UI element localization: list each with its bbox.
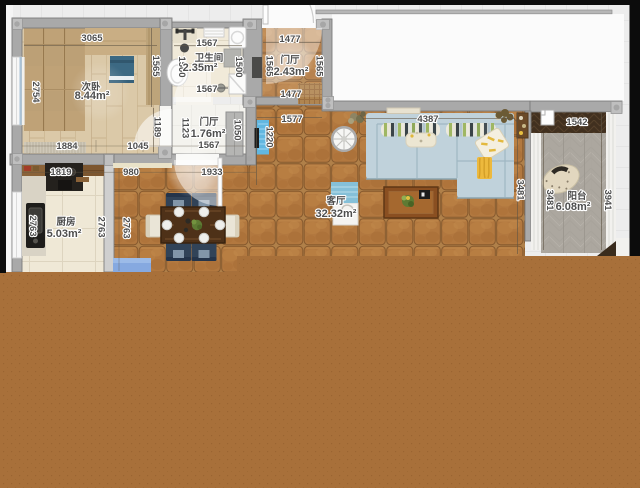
svg-text:1045: 1045 — [127, 141, 149, 152]
svg-text:1577: 1577 — [281, 114, 302, 125]
svg-text:1500: 1500 — [233, 56, 244, 77]
svg-text:1050: 1050 — [232, 119, 243, 140]
svg-text:2.43m²: 2.43m² — [274, 66, 309, 78]
svg-text:8.44m²: 8.44m² — [75, 90, 110, 102]
svg-text:3941: 3941 — [602, 189, 613, 211]
svg-text:1565: 1565 — [150, 55, 161, 77]
svg-text:2.35m²: 2.35m² — [183, 62, 218, 74]
svg-text:2763: 2763 — [96, 216, 107, 237]
svg-text:厨房: 厨房 — [56, 216, 75, 228]
svg-text:1565: 1565 — [314, 55, 325, 77]
svg-text:1567: 1567 — [196, 84, 217, 95]
svg-text:3481: 3481 — [515, 179, 526, 201]
svg-text:2754: 2754 — [30, 81, 41, 103]
svg-text:1933: 1933 — [201, 167, 222, 178]
svg-text:客厅: 客厅 — [325, 195, 346, 207]
svg-text:1884: 1884 — [56, 141, 78, 152]
svg-text:1189: 1189 — [152, 117, 163, 138]
svg-text:5.03m²: 5.03m² — [47, 228, 82, 240]
svg-text:1477: 1477 — [280, 89, 301, 100]
svg-text:2763: 2763 — [121, 217, 132, 238]
svg-text:2763: 2763 — [27, 215, 38, 236]
svg-text:4387: 4387 — [417, 114, 438, 125]
svg-text:1819: 1819 — [50, 167, 71, 178]
svg-text:1.76m²: 1.76m² — [191, 128, 226, 140]
svg-text:1567: 1567 — [196, 38, 217, 49]
svg-text:6.08m²: 6.08m² — [556, 201, 591, 213]
svg-text:1542: 1542 — [566, 117, 587, 128]
svg-text:1477: 1477 — [279, 34, 300, 45]
svg-text:1123: 1123 — [180, 118, 191, 139]
svg-text:980: 980 — [123, 167, 139, 178]
svg-text:3065: 3065 — [81, 33, 103, 44]
svg-text:门厅: 门厅 — [199, 116, 219, 128]
svg-text:3481: 3481 — [544, 189, 555, 211]
svg-text:32.32m²: 32.32m² — [316, 208, 357, 220]
svg-text:门厅: 门厅 — [280, 54, 300, 66]
svg-text:1220: 1220 — [264, 126, 275, 147]
svg-text:1567: 1567 — [198, 140, 219, 151]
